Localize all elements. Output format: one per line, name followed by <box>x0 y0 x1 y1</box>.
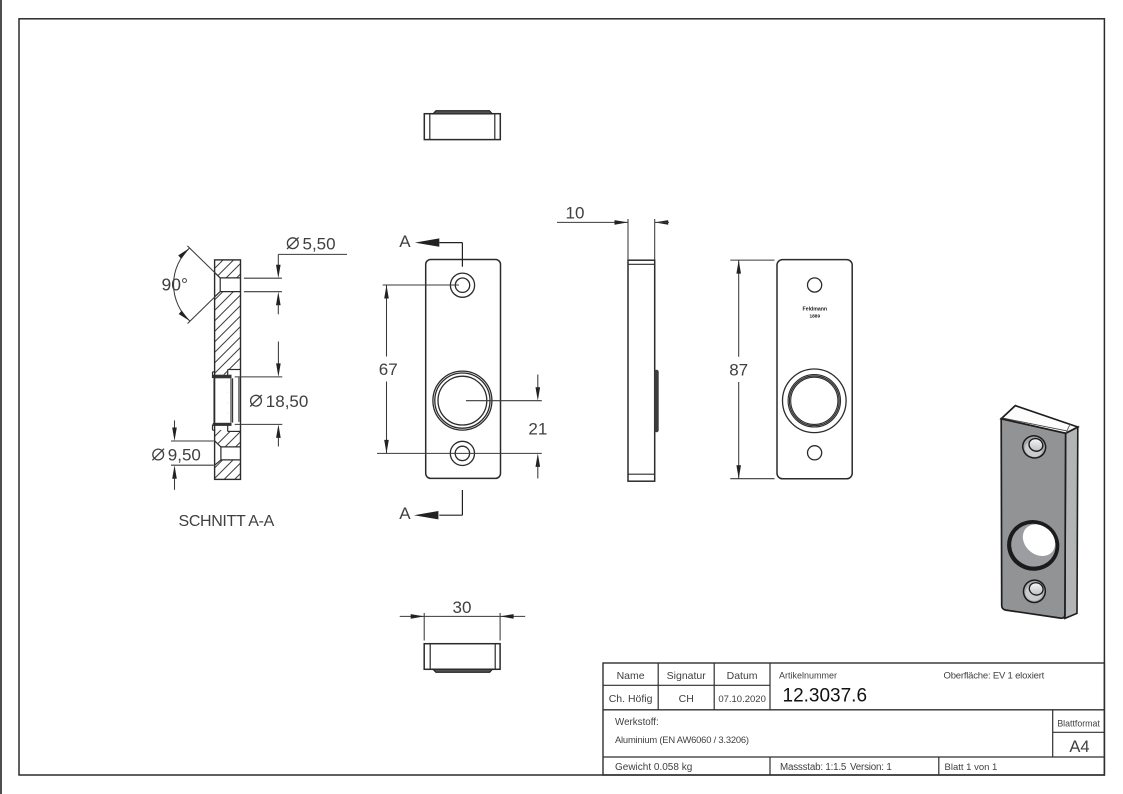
svg-text:Datum: Datum <box>727 670 758 682</box>
svg-text:5,50: 5,50 <box>303 234 336 253</box>
svg-text:9,50: 9,50 <box>168 446 201 465</box>
svg-text:Werkstoff:: Werkstoff: <box>615 717 659 728</box>
svg-text:A: A <box>399 504 411 523</box>
svg-text:A4: A4 <box>1069 738 1089 756</box>
svg-text:12.3037.6: 12.3037.6 <box>783 686 868 707</box>
svg-text:Oberfläche: EV 1 eloxiert: Oberfläche: EV 1 eloxiert <box>944 670 1045 681</box>
svg-text:Massstab: 1:1.5: Massstab: 1:1.5 <box>780 762 847 773</box>
svg-text:07.10.2020: 07.10.2020 <box>718 694 766 705</box>
svg-text:Blatt 1 von 1: Blatt 1 von 1 <box>945 762 998 773</box>
svg-text:1889: 1889 <box>809 314 820 320</box>
svg-text:Gewicht 0.058 kg: Gewicht 0.058 kg <box>615 762 692 773</box>
svg-text:67: 67 <box>379 360 398 379</box>
svg-text:21: 21 <box>528 420 547 439</box>
svg-text:Signatur: Signatur <box>667 670 707 682</box>
svg-text:Aluminium (EN AW6060 / 3.3206): Aluminium (EN AW6060 / 3.3206) <box>615 734 749 745</box>
svg-text:Blattformat: Blattformat <box>1057 718 1100 728</box>
svg-text:Artikelnummer: Artikelnummer <box>779 670 837 680</box>
svg-text:Version: 1: Version: 1 <box>850 762 892 773</box>
svg-text:10: 10 <box>566 204 585 223</box>
svg-text:90°: 90° <box>162 274 188 294</box>
svg-text:Ch. Höfig: Ch. Höfig <box>609 693 653 705</box>
svg-text:18,50: 18,50 <box>266 392 309 411</box>
svg-text:Name: Name <box>617 670 645 682</box>
svg-text:Feldmann: Feldmann <box>803 306 828 312</box>
svg-text:SCHNITT A-A: SCHNITT A-A <box>179 513 275 530</box>
svg-text:A: A <box>399 232 411 251</box>
svg-text:CH: CH <box>679 693 694 705</box>
svg-text:87: 87 <box>729 360 748 379</box>
svg-text:30: 30 <box>453 598 472 617</box>
